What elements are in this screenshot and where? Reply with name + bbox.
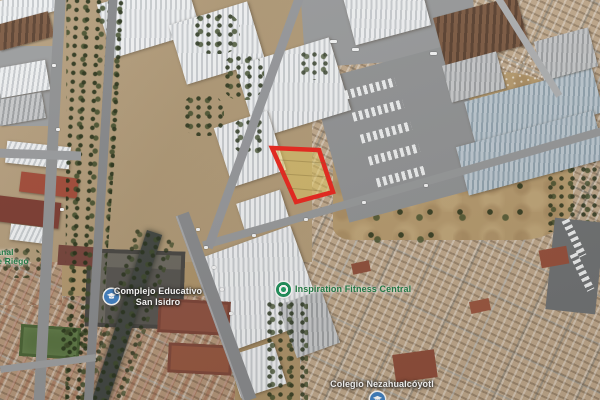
poi-label-canal-line2[interactable]: de Riego — [0, 256, 29, 266]
vehicle — [212, 266, 216, 269]
graduation-cap-icon — [372, 394, 383, 400]
vehicle — [196, 228, 200, 231]
vehicle — [52, 64, 56, 67]
red-roof-building — [392, 349, 437, 383]
vehicle — [229, 312, 233, 315]
poi-label-fitness[interactable]: Inspiration Fitness Central — [295, 284, 411, 294]
vehicle — [204, 246, 208, 249]
poi-label-line2: San Isidro — [136, 297, 181, 307]
tree-cluster — [222, 54, 264, 100]
truck — [330, 40, 337, 43]
vehicle — [60, 208, 64, 211]
education-poi-icon-colegio[interactable] — [370, 392, 385, 400]
vehicle — [304, 218, 308, 221]
roadside-trees — [356, 222, 436, 248]
satellite-map-canvas[interactable]: Complejo Educativo San Isidro Inspiratio… — [0, 0, 600, 400]
tree-cluster — [182, 94, 224, 136]
vehicle — [252, 234, 256, 237]
poi-label-complejo-educativo[interactable]: Complejo Educativo San Isidro — [112, 286, 204, 308]
tree-cluster — [192, 12, 240, 54]
vehicle — [362, 201, 366, 204]
gym-poi-icon[interactable] — [276, 282, 291, 297]
truck — [352, 48, 359, 51]
vehicle — [424, 184, 428, 187]
vehicle — [56, 128, 60, 131]
vehicle — [220, 288, 224, 291]
tree-cluster — [298, 50, 330, 80]
tree-band-southeast-of-canal — [264, 300, 308, 400]
poi-label-line1: Complejo Educativo — [114, 286, 202, 296]
truck — [430, 52, 437, 55]
poi-label-colegio[interactable]: Colegio Nezahualcóyotl — [322, 379, 442, 390]
